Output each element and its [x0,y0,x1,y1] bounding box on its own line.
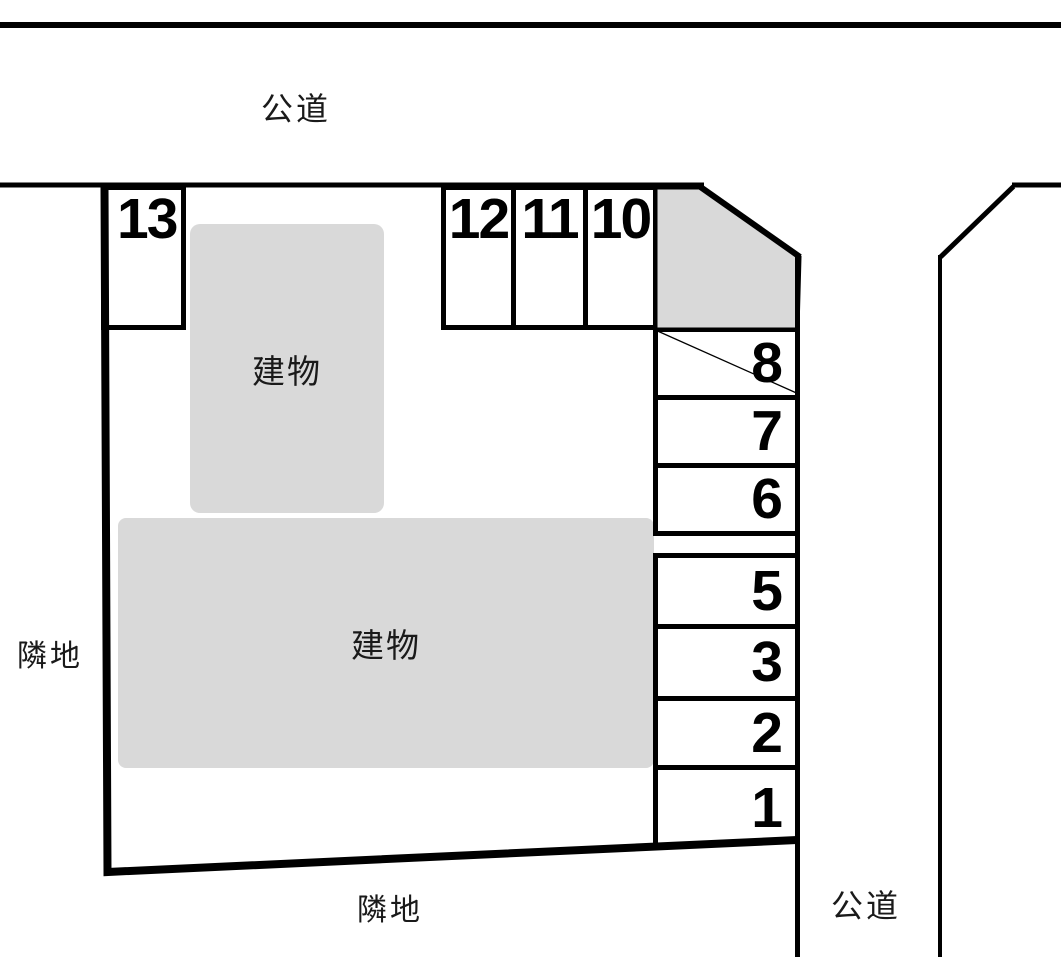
parking-space-13: 13 [101,185,186,330]
neighbor-label-left: 隣地 [0,631,100,675]
parking-space-11: 11 [511,185,588,330]
parking-layout-diagram: 建物 建物 13 12 11 10 8 7 6 5 3 2 1 [0,0,1061,957]
parking-space-5: 5 [653,553,800,629]
space-8-number: 8 [751,335,781,392]
space-1-number: 1 [751,780,781,837]
building-upper: 建物 [190,224,384,513]
east-parcel-chamfer-line [941,187,1014,258]
property-chamfer-line [701,187,801,257]
road-label-top: 公道 [216,84,376,130]
parking-space-8: 8 [653,327,800,400]
parking-space-2: 2 [653,696,800,770]
space-11-number: 11 [521,187,577,251]
parking-space-6: 6 [653,463,800,536]
building-lower: 建物 [118,518,654,768]
space-6-number: 6 [751,471,781,528]
parking-space-12: 12 [441,185,516,330]
space-13-number: 13 [117,187,176,251]
space-7-number: 7 [751,403,781,460]
parking-space-7: 7 [653,395,800,468]
space-3-number: 3 [751,634,781,691]
no-parking-corner-area [656,188,800,330]
parking-space-10: 10 [583,185,658,330]
neighbor-label-bottom: 隣地 [310,885,470,929]
space-10-number: 10 [591,187,650,251]
boundary-lines-layer [0,0,1061,957]
parking-space-3: 3 [653,624,800,701]
space-5-number: 5 [751,563,781,620]
space-12-number: 12 [449,187,508,251]
parking-space-1: 1 [653,765,800,847]
building-upper-label: 建物 [252,345,322,393]
space-2-number: 2 [751,705,781,762]
road-label-right: 公道 [786,881,946,927]
building-lower-label: 建物 [351,619,421,667]
